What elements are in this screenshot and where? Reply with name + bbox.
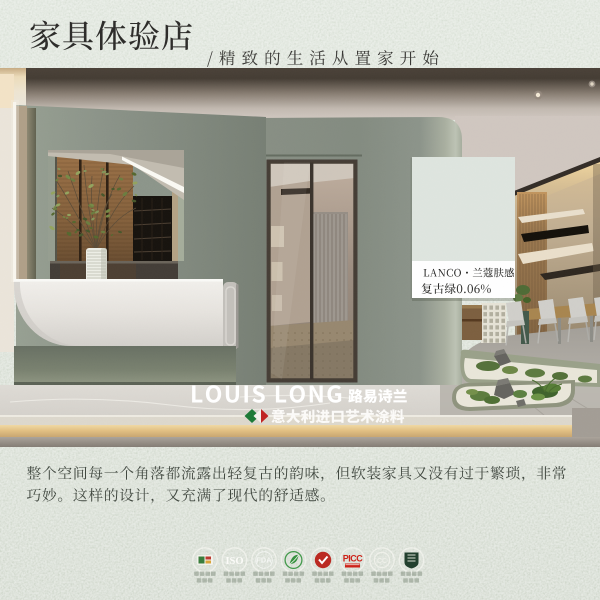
svg-text:PICC: PICC [343, 554, 364, 564]
svg-text:FDA: FDA [256, 556, 272, 565]
svg-text:CC: CC [377, 558, 387, 565]
svg-text:ISO: ISO [225, 556, 243, 567]
